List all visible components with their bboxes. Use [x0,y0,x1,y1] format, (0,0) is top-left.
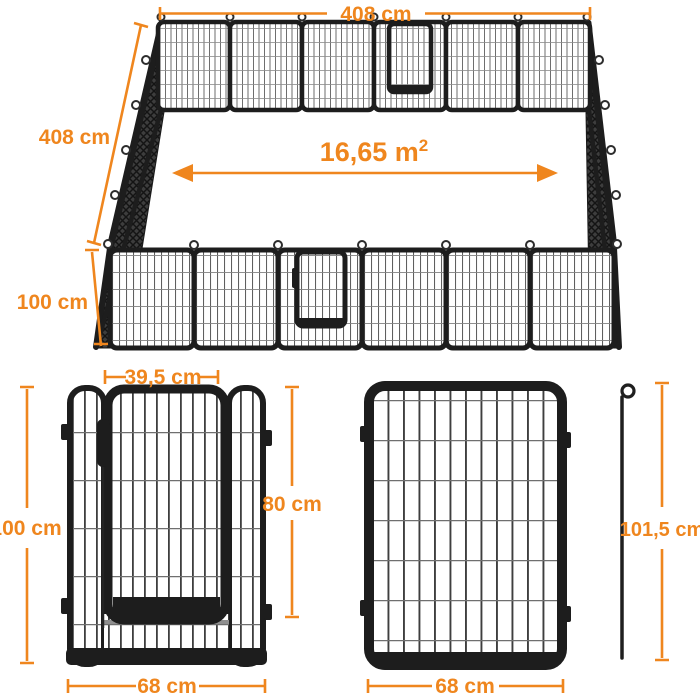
back-door-bottom-bar [391,85,429,92]
stake-loop [622,385,634,397]
diagram-canvas: 408 cm 408 cm 100 cm 16,65 m2 [0,0,700,700]
back-panel-6 [518,22,590,110]
back-panel-1 [158,22,230,110]
dim-label-front-height: 100 cm [17,291,88,314]
dim-label-stake-length: 101,5 cm [620,519,700,541]
back-wall [158,22,590,110]
dim-label-top-width: 408 cm [340,3,411,26]
dim-label-door-width: 39,5 cm [124,366,201,389]
mesh-panel-bottom-bar [370,652,561,665]
back-door-panel [374,22,446,110]
door-latch [97,419,110,467]
ground-stake: 101,5 cm [620,383,700,660]
mesh-panel-frame [369,386,562,665]
door-panel-right-post [229,388,263,664]
area-arrow-right [537,164,558,182]
front-panel-1 [110,250,194,348]
front-panel-2 [194,250,278,348]
dim-panel-height: 100 cm [0,387,62,663]
door-panel-detail: 39,5 cm 100 cm 80 cm 68 cm [0,366,322,698]
dim-floor-area: 16,65 m2 [172,136,558,182]
dim-label-door-panel-width: 68 cm [137,675,197,698]
front-panel-4 [362,250,446,348]
dim-front-height: 100 cm [17,250,108,346]
connector-tab [61,424,69,440]
back-panel-3 [302,22,374,110]
connector-tab [360,426,369,442]
assembled-pen-view: 408 cm 408 cm 100 cm 16,65 m2 [17,3,621,348]
back-panel-5 [446,22,518,110]
dim-label-side-depth: 408 cm [39,126,110,149]
front-door-bottom-bar [299,318,343,326]
area-arrow-left [172,164,193,182]
connector-tab [264,430,272,446]
dim-label-door-height: 80 cm [262,493,322,516]
door-panel-bottom-bar [66,648,267,665]
dim-label-floor-area: 16,65 m2 [320,136,429,167]
connector-tab [264,604,272,620]
connector-tab [562,432,571,448]
door [108,389,225,620]
front-door-panel [278,250,362,348]
dim-stake-length: 101,5 cm [620,383,700,660]
door-bottom-bar [113,597,220,616]
connector-tab [562,606,571,622]
dim-door-height: 80 cm [262,387,322,617]
dim-label-panel-height: 100 cm [0,517,62,540]
front-panel-5 [446,250,530,348]
product-dimension-diagram: 408 cm 408 cm 100 cm 16,65 m2 [0,0,700,700]
dim-door-panel-width: 68 cm [68,675,265,698]
connector-tab [360,600,369,616]
back-panel-2 [230,22,302,110]
dim-mesh-panel-width: 68 cm [368,675,563,698]
front-door-latch [292,268,297,288]
mesh-panel-detail: 68 cm [360,386,571,698]
front-panel-6 [530,250,614,348]
front-wall [110,250,614,348]
connector-tab [61,598,69,614]
dim-label-mesh-panel-width: 68 cm [435,675,495,698]
